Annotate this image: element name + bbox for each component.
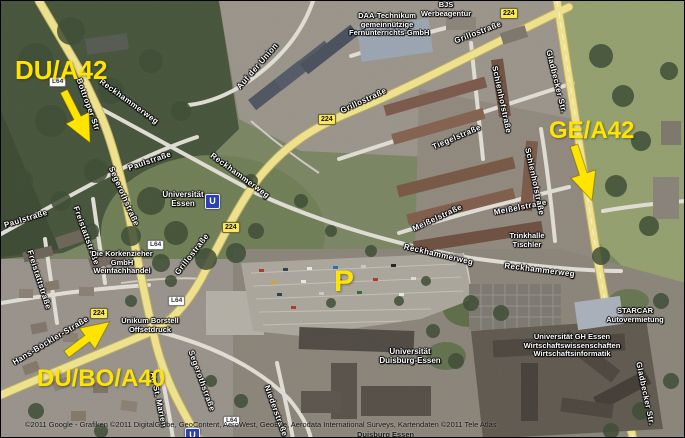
poi-label-universitaet-duisburg-essen: Universität Duisburg-Essen bbox=[369, 347, 451, 365]
poi-label-unikum-offsetdruck: Unikum Borstell Offsetdruck bbox=[113, 317, 187, 334]
poi-label-daa-technikum: DAA-Technikum gemeinnützige Fernunterric… bbox=[349, 12, 425, 38]
poi-label-starcar: STARCAR Autovermietung bbox=[597, 307, 673, 324]
poi-label-bjs-werbeagentur: BJS Werbeagentur bbox=[417, 1, 475, 18]
annotation-du-a42: DU/A42 bbox=[15, 55, 107, 86]
poi-label-trinkhalle-tischler: Trinkhalle Tischler bbox=[499, 232, 555, 249]
annotation-parking-p: P bbox=[334, 265, 354, 299]
route-badge-224-3: 224 bbox=[222, 222, 240, 233]
route-badge-224-1: 224 bbox=[318, 114, 336, 125]
poi-label-korkenzieher: Die Korkenzieher GmbH Weinfachhandel bbox=[85, 250, 159, 276]
route-badge-l64-3: L64 bbox=[168, 296, 185, 306]
poi-label-universitaet-essen: Universität Essen bbox=[157, 190, 209, 208]
annotation-ge-a42: GE/A42 bbox=[549, 117, 634, 145]
poi-label-uni-gh-essen: Universität GH Essen Wirtschaftswissensc… bbox=[519, 333, 625, 359]
annotation-du-bo-a40: DU/BO/A40 bbox=[37, 365, 165, 393]
satellite-map-viewport[interactable]: Bottroper Str Reckhammerweg Reckhammerwe… bbox=[0, 0, 685, 438]
map-attribution: ©2011 Google - Grafiken ©2011 DigitalGlo… bbox=[25, 420, 497, 429]
poi-label-duisburg-essen-station: Duisburg Essen bbox=[357, 430, 414, 438]
route-badge-224-2: 224 bbox=[500, 8, 518, 19]
ubahn-station-icon-2: U bbox=[185, 428, 200, 438]
